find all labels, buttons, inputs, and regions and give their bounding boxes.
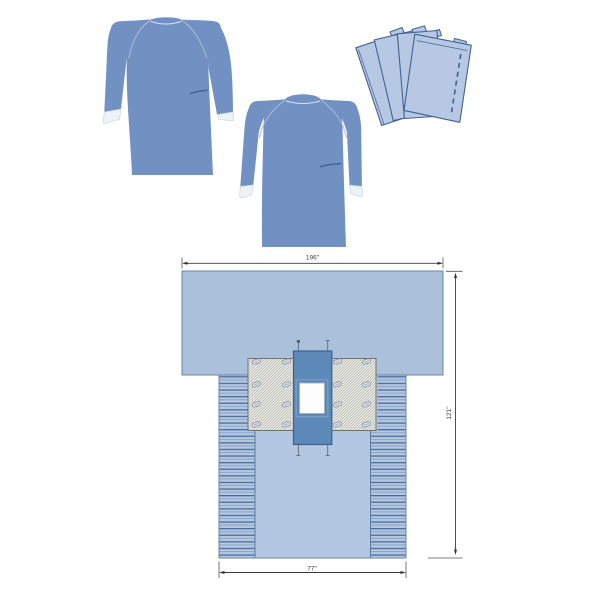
svg-text:196": 196" [306, 255, 320, 262]
svg-text:121": 121" [446, 406, 453, 420]
svg-text:77": 77" [307, 565, 317, 572]
